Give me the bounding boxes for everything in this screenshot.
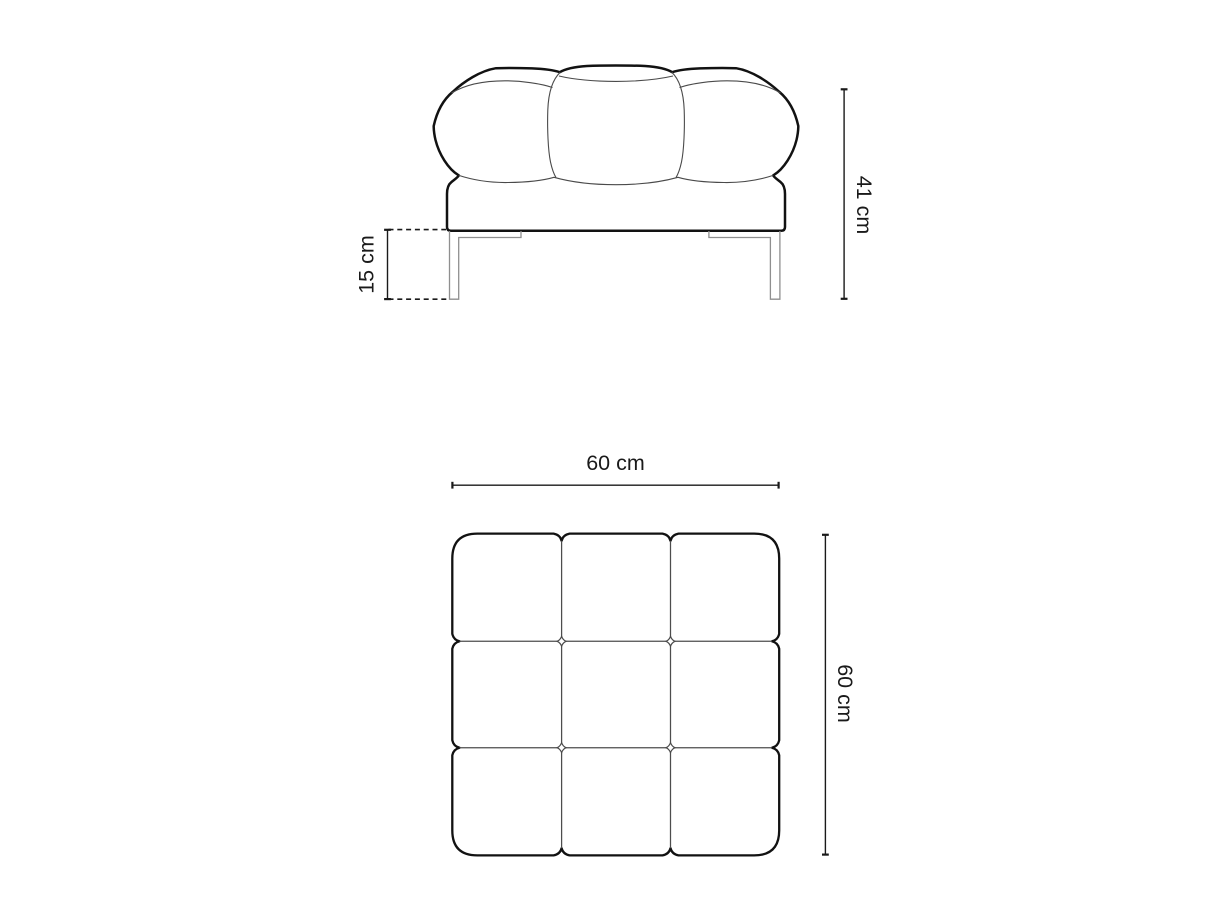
svg-text:60 cm: 60 cm (586, 451, 645, 475)
svg-text:15 cm: 15 cm (355, 235, 379, 294)
svg-text:60 cm: 60 cm (833, 664, 857, 723)
svg-text:41 cm: 41 cm (852, 176, 876, 235)
